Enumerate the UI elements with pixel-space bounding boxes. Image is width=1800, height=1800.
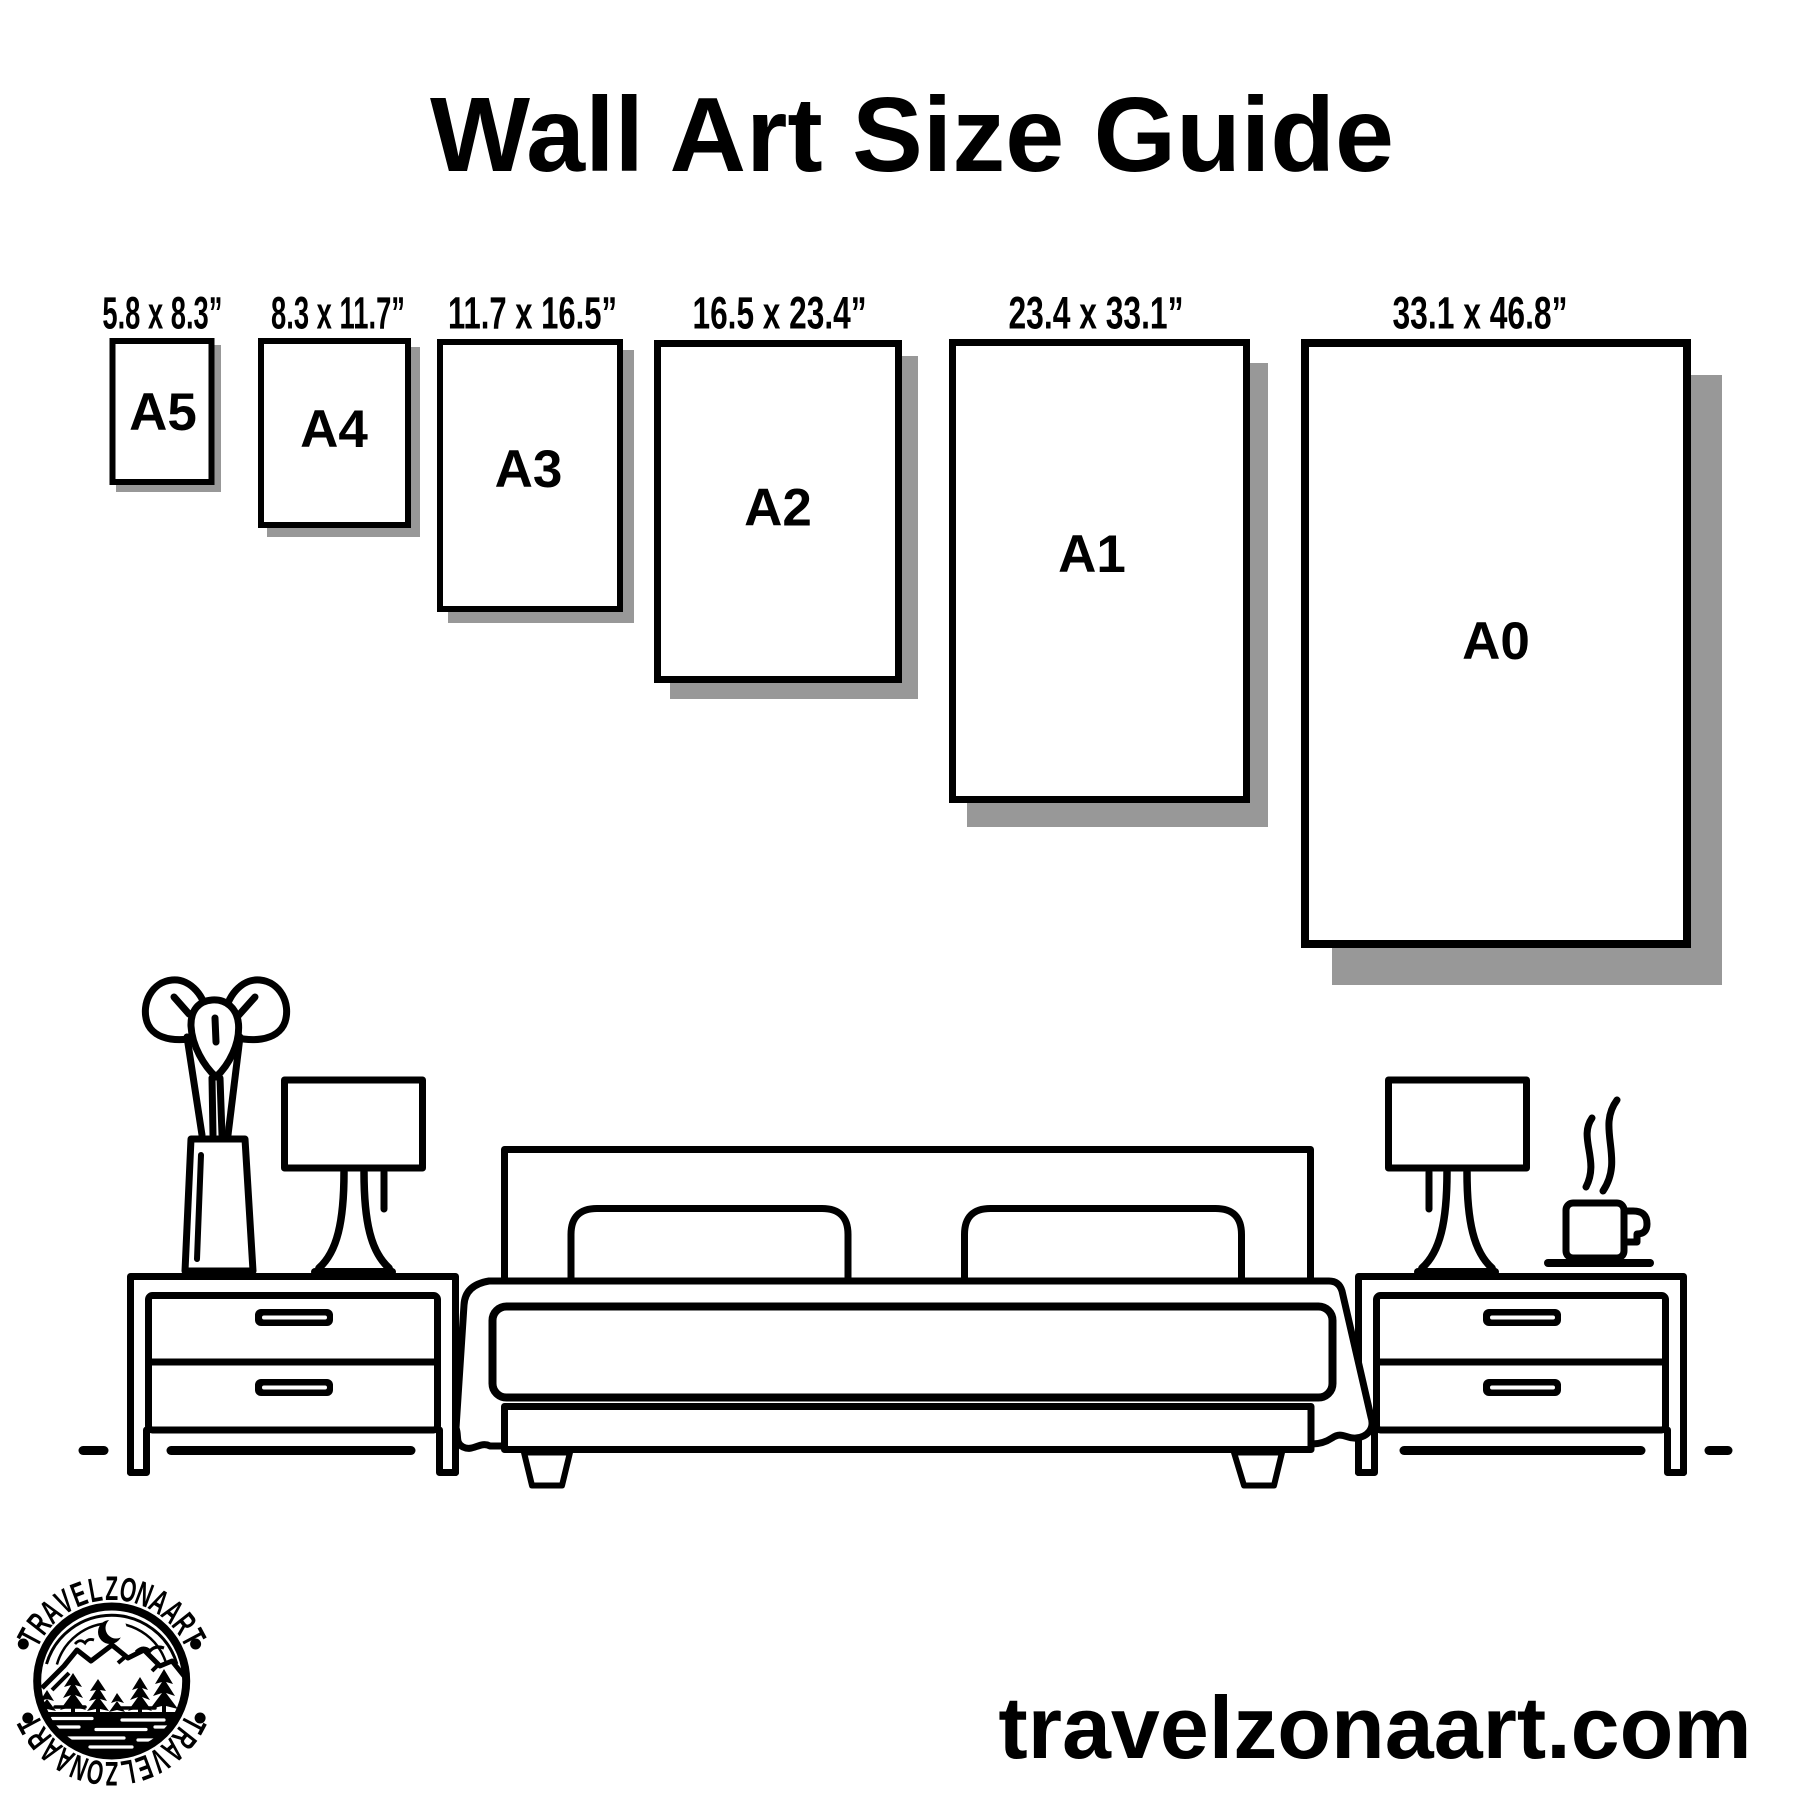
svg-text:Wall Art Size Guide: Wall Art Size Guide [430,76,1394,194]
svg-text:Z: Z [105,1569,118,1607]
svg-text:16.5 x 23.4”: 16.5 x 23.4” [693,288,867,339]
svg-text:A2: A2 [744,479,812,538]
svg-text:23.4 x 33.1”: 23.4 x 33.1” [1009,288,1184,339]
svg-text:A1: A1 [1058,525,1126,584]
svg-text:A0: A0 [1462,612,1530,671]
svg-text:11.7 x 16.5”: 11.7 x 16.5” [448,288,617,339]
svg-text:33.1 x 46.8”: 33.1 x 46.8” [1393,288,1568,339]
svg-text:A5: A5 [129,383,197,442]
svg-text:travelzonaart.com: travelzonaart.com [998,1678,1751,1777]
svg-text:Z: Z [105,1755,118,1793]
svg-text:8.3 x 11.7”: 8.3 x 11.7” [271,288,405,339]
svg-text:A4: A4 [300,400,368,459]
svg-text:5.8 x 8.3”: 5.8 x 8.3” [102,288,222,339]
svg-text:A3: A3 [495,440,563,499]
